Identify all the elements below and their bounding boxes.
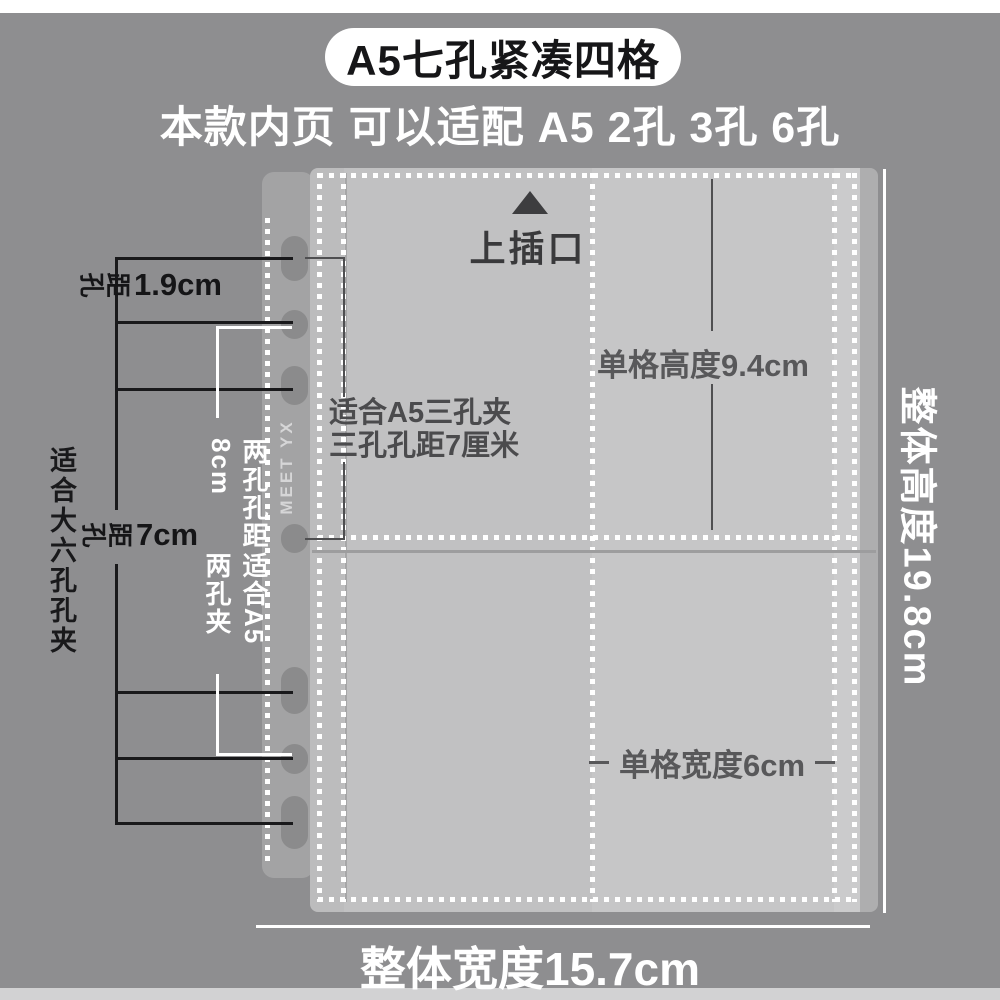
dash-left — [589, 761, 609, 764]
stitch-bottom — [318, 897, 856, 902]
binder-hole — [281, 366, 308, 405]
three-hole-label: 适合A5三孔夹 三孔孔距7厘米 — [329, 397, 519, 463]
hole-gap-large-label: 孔 距 7cm — [82, 517, 198, 553]
two-hole-label: 两孔孔距8cm 适合A5两孔夹 — [194, 438, 273, 670]
white-bracket-bottom — [216, 753, 292, 756]
overall-height-label: 整体高度19.8cm — [894, 387, 949, 688]
white-bracket-top — [216, 326, 292, 329]
black-branch-hole2 — [115, 321, 293, 324]
stitch-seam-horizontal — [318, 535, 856, 540]
title-banner: A5七孔紧凑四格 — [325, 28, 681, 86]
three-hole-bracket-vert1 — [343, 257, 345, 397]
overall-width-label: 整体宽度15.7cm — [280, 933, 780, 999]
top-insert-label: 上插口 — [448, 220, 608, 272]
two-hole-label-col1: 两孔孔距8cm — [199, 438, 273, 552]
binder-hole — [281, 524, 308, 553]
white-bracket-vert-bottom — [216, 674, 219, 756]
cell-width-label: 单格宽度6cm — [619, 740, 805, 785]
black-bracket-vert-bottom — [115, 564, 118, 825]
cell-height-line-bottom — [711, 384, 713, 530]
binder-hole — [281, 310, 308, 339]
overall-height-line — [883, 169, 886, 913]
three-hole-bracket-top — [305, 257, 345, 259]
black-branch-hole5 — [115, 691, 293, 694]
white-bracket-vert-top — [216, 326, 219, 418]
cell-height-label: 单格高度9.4cm — [597, 340, 809, 385]
black-branch-hole1 — [115, 257, 293, 260]
hole-gap-large-value: 7cm — [136, 517, 198, 553]
brand-text: MEET YX — [277, 419, 297, 514]
three-hole-label-line1: 适合A5三孔夹 — [329, 397, 519, 430]
hole-gap-small-value: 1.9cm — [134, 267, 222, 303]
dash-right — [815, 761, 835, 764]
overall-width-line — [256, 925, 870, 928]
pocket-opening-line — [312, 550, 876, 553]
cell-width-measure: 单格宽度6cm — [586, 740, 838, 785]
rotated-char: 距 — [103, 522, 139, 548]
six-hole-label: 适合大六孔孔夹 — [42, 446, 81, 656]
banner-title: A5七孔紧凑四格 — [346, 27, 660, 88]
rotated-char: 距 — [101, 272, 137, 298]
black-branch-hole6 — [115, 757, 293, 760]
three-hole-bracket-vert2 — [343, 462, 345, 540]
three-hole-bracket-bottom — [305, 538, 345, 540]
product-infographic: A5七孔紧凑四格 本款内页 可以适配 A5 2孔 3孔 6孔 MEET YX 上… — [0, 0, 1000, 1000]
subtitle-text: 本款内页 可以适配 A5 2孔 3孔 6孔 — [0, 93, 1000, 155]
hole-gap-small-label: 孔 距 1.9cm — [80, 267, 222, 303]
up-triangle-icon — [512, 191, 548, 214]
two-hole-label-col2: 适合A5两孔夹 — [199, 552, 273, 670]
black-branch-hole3 — [115, 388, 293, 391]
three-hole-label-line2: 三孔孔距7厘米 — [329, 430, 519, 463]
black-branch-hole7 — [115, 822, 293, 825]
cell-height-line-top — [711, 179, 713, 331]
stitch-top — [318, 173, 856, 178]
